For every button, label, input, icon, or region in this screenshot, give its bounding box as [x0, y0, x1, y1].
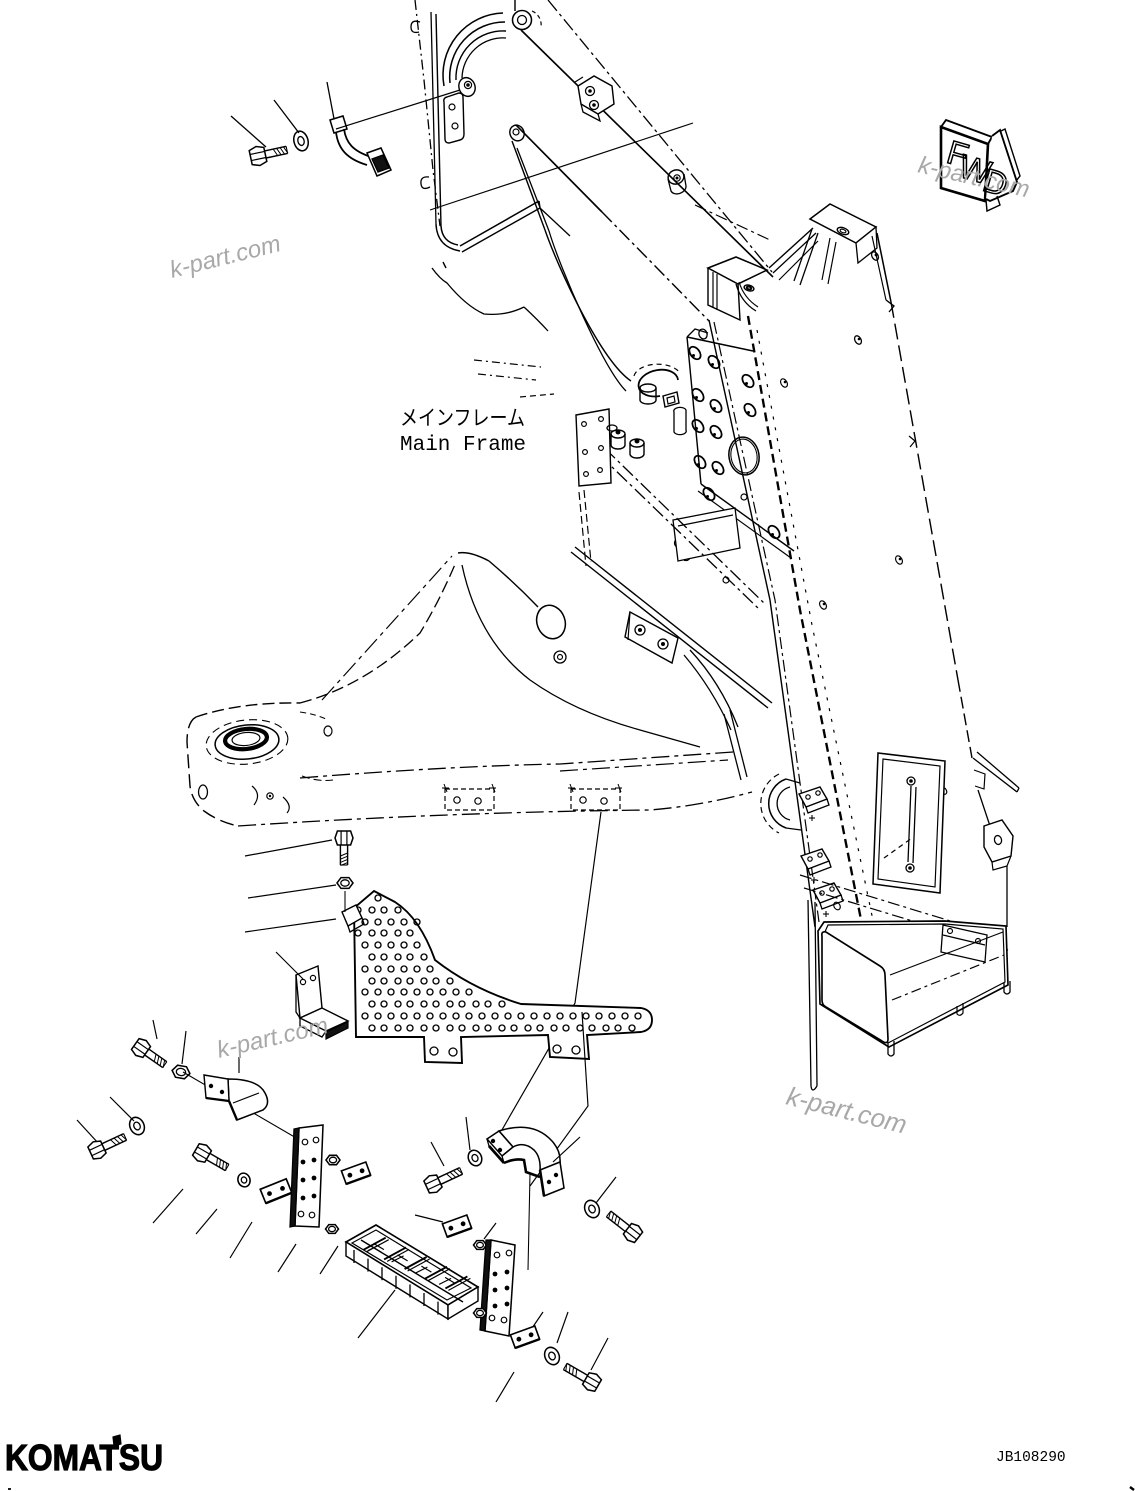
svg-text:KOMATSU: KOMATSU	[5, 1437, 163, 1478]
svg-text:Main Frame: Main Frame	[400, 434, 526, 457]
svg-text:メインフレーム: メインフレーム	[400, 408, 525, 432]
svg-text:JB108290: JB108290	[996, 1450, 1066, 1466]
